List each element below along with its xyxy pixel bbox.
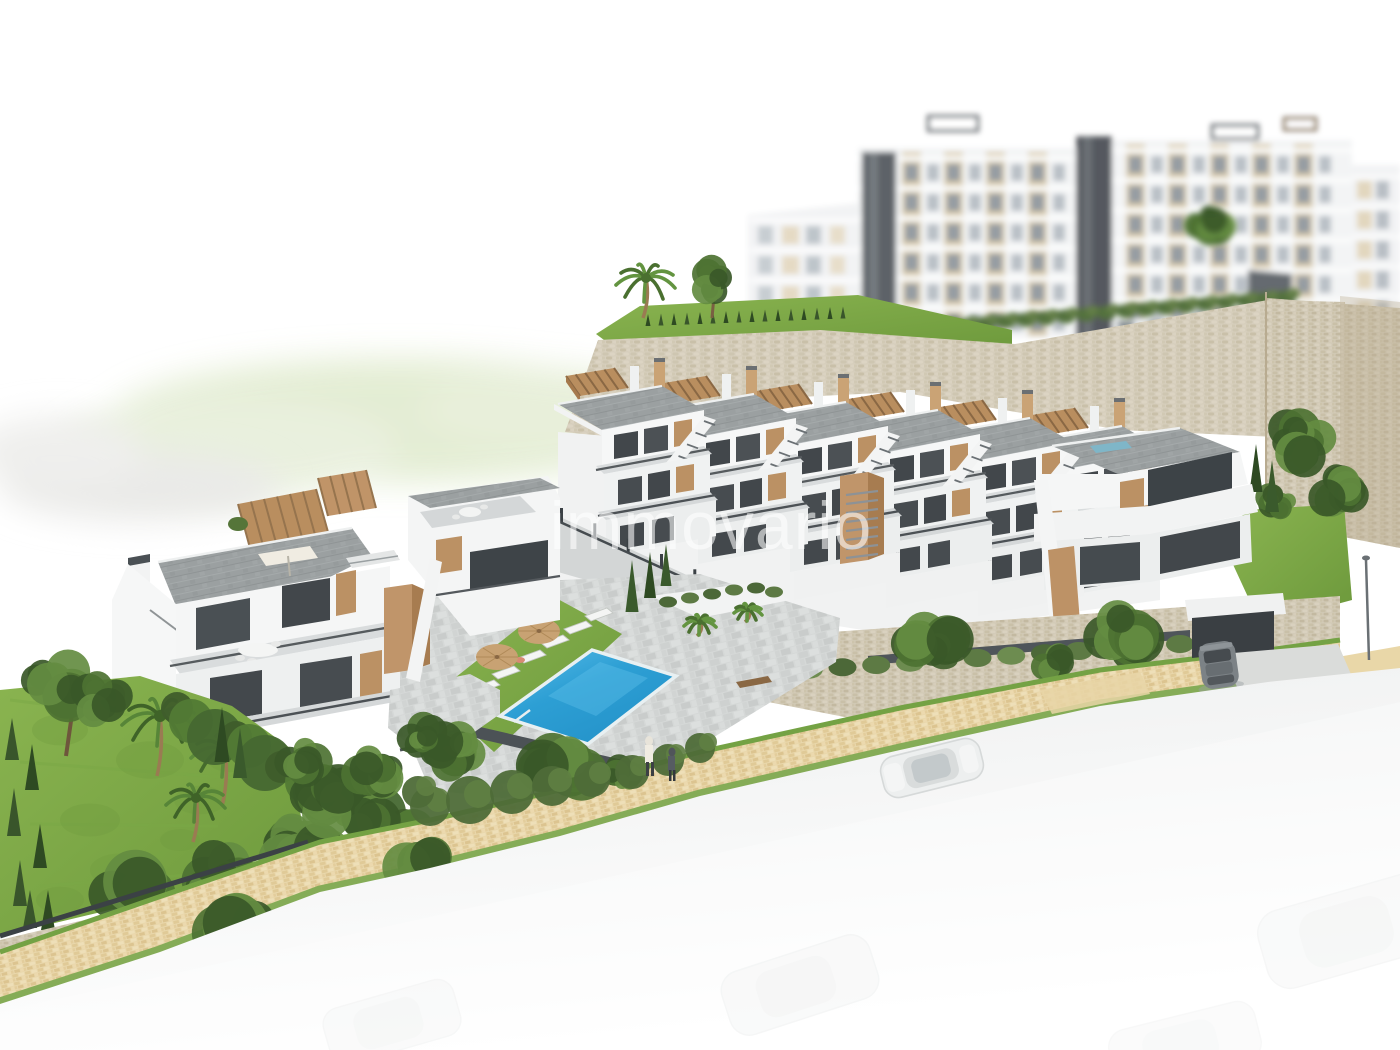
svg-text:immovario: immovario	[550, 488, 873, 564]
